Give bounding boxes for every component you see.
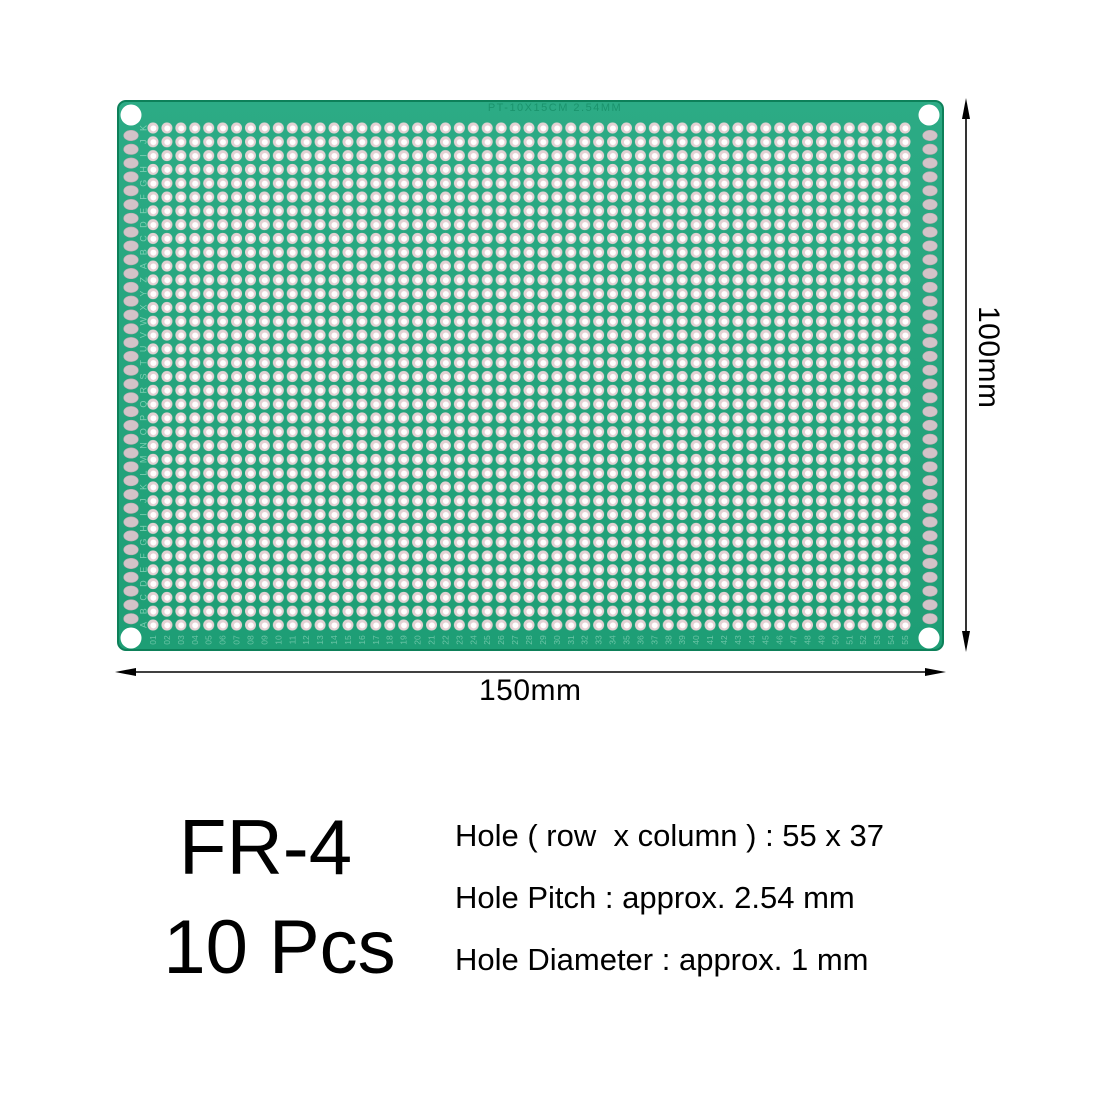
- svg-text:51: 51: [844, 635, 854, 645]
- svg-text:Q: Q: [139, 401, 149, 408]
- product-image: KJIHGFEDCBAZYXWVUTSRQPONMLKJIHGFEDCBA010…: [0, 0, 1100, 1100]
- svg-text:I: I: [139, 513, 149, 516]
- svg-text:25: 25: [482, 635, 492, 645]
- edge-pad: [923, 130, 938, 140]
- edge-pad: [124, 600, 139, 610]
- svg-text:03: 03: [176, 635, 186, 645]
- svg-text:45: 45: [761, 635, 771, 645]
- svg-text:C: C: [139, 235, 149, 242]
- edge-pad: [124, 282, 139, 292]
- edge-pad: [923, 448, 938, 458]
- svg-text:S: S: [139, 373, 149, 379]
- svg-text:34: 34: [608, 635, 618, 645]
- material-label: FR-4: [168, 803, 363, 893]
- edge-pad: [124, 475, 139, 485]
- edge-pad: [124, 489, 139, 499]
- edge-pad: [923, 158, 938, 168]
- svg-text:I: I: [139, 154, 149, 157]
- svg-text:07: 07: [232, 635, 242, 645]
- svg-text:V: V: [139, 332, 149, 338]
- edge-pad: [923, 351, 938, 361]
- edge-pad: [124, 255, 139, 265]
- height-dimension-label: 100mm: [971, 306, 1005, 409]
- mounting-hole: [121, 628, 142, 649]
- edge-pad: [923, 268, 938, 278]
- svg-text:23: 23: [454, 635, 464, 645]
- svg-text:39: 39: [677, 635, 687, 645]
- svg-text:27: 27: [510, 635, 520, 645]
- spec-hole-count: Hole ( row x column ) : 55 x 37: [455, 818, 884, 854]
- svg-text:14: 14: [329, 635, 339, 645]
- svg-text:16: 16: [357, 635, 367, 645]
- edge-pad: [124, 434, 139, 444]
- svg-text:N: N: [139, 442, 149, 449]
- edge-pad: [923, 531, 938, 541]
- svg-text:28: 28: [524, 635, 534, 645]
- edge-pad: [923, 558, 938, 568]
- edge-pad: [923, 255, 938, 265]
- svg-text:38: 38: [663, 635, 673, 645]
- edge-pad: [923, 600, 938, 610]
- edge-pad: [124, 324, 139, 334]
- edge-pad: [923, 406, 938, 416]
- svg-text:Y: Y: [139, 291, 149, 297]
- edge-pad: [124, 199, 139, 209]
- svg-text:21: 21: [427, 635, 437, 645]
- edge-pad: [923, 434, 938, 444]
- edge-pad: [124, 296, 139, 306]
- spec-hole-diameter: Hole Diameter : approx. 1 mm: [455, 942, 884, 978]
- edge-pad: [124, 379, 139, 389]
- edge-pad: [124, 517, 139, 527]
- svg-text:A: A: [139, 622, 149, 628]
- svg-text:17: 17: [371, 635, 381, 645]
- edge-pad: [124, 503, 139, 513]
- svg-text:36: 36: [635, 635, 645, 645]
- svg-text:47: 47: [789, 635, 799, 645]
- svg-text:10: 10: [273, 635, 283, 645]
- svg-text:09: 09: [259, 635, 269, 645]
- svg-text:33: 33: [594, 635, 604, 645]
- svg-text:D: D: [139, 580, 149, 587]
- edge-pad: [124, 186, 139, 196]
- edge-pad: [923, 586, 938, 596]
- edge-pad: [124, 268, 139, 278]
- edge-pad: [124, 365, 139, 375]
- height-dimension-line: [962, 98, 970, 652]
- svg-text:55: 55: [900, 635, 910, 645]
- svg-text:46: 46: [775, 635, 785, 645]
- svg-text:20: 20: [413, 635, 423, 645]
- edge-pad: [124, 241, 139, 251]
- silkscreen-title: PT-10X15CM 2.54MM: [488, 102, 622, 114]
- edge-pad: [124, 613, 139, 623]
- edge-pad: [923, 282, 938, 292]
- width-dimension-label: 150mm: [479, 674, 582, 708]
- edge-pad: [923, 572, 938, 582]
- edge-pad: [923, 241, 938, 251]
- svg-text:E: E: [139, 567, 149, 573]
- svg-text:C: C: [139, 594, 149, 601]
- edge-pad: [923, 365, 938, 375]
- svg-text:02: 02: [162, 635, 172, 645]
- svg-text:31: 31: [566, 635, 576, 645]
- svg-text:G: G: [139, 180, 149, 187]
- svg-text:37: 37: [649, 635, 659, 645]
- edge-pad: [923, 420, 938, 430]
- svg-text:R: R: [139, 387, 149, 394]
- hole-grid: [146, 121, 912, 632]
- pcb-board: KJIHGFEDCBAZYXWVUTSRQPONMLKJIHGFEDCBA010…: [0, 0, 1100, 760]
- edge-pad: [923, 296, 938, 306]
- svg-text:41: 41: [705, 635, 715, 645]
- svg-text:01: 01: [148, 635, 158, 645]
- svg-text:J: J: [139, 140, 149, 145]
- edge-pad: [923, 199, 938, 209]
- edge-pad: [124, 310, 139, 320]
- svg-text:44: 44: [747, 635, 757, 645]
- svg-text:L: L: [139, 471, 149, 476]
- svg-text:19: 19: [399, 635, 409, 645]
- svg-text:B: B: [139, 249, 149, 255]
- edge-pad: [923, 613, 938, 623]
- edge-pad: [124, 531, 139, 541]
- edge-pad: [124, 406, 139, 416]
- svg-text:Z: Z: [139, 277, 149, 283]
- edge-pad: [923, 489, 938, 499]
- edge-pad: [923, 213, 938, 223]
- edge-pad: [124, 544, 139, 554]
- svg-text:42: 42: [719, 635, 729, 645]
- svg-text:H: H: [139, 525, 149, 532]
- svg-text:D: D: [139, 221, 149, 228]
- svg-text:49: 49: [816, 635, 826, 645]
- svg-text:22: 22: [440, 635, 450, 645]
- svg-text:35: 35: [621, 635, 631, 645]
- edge-pad: [923, 544, 938, 554]
- svg-text:15: 15: [343, 635, 353, 645]
- mounting-hole: [919, 628, 940, 649]
- edge-pad: [124, 351, 139, 361]
- svg-text:J: J: [139, 499, 149, 504]
- edge-pad: [923, 393, 938, 403]
- edge-pad: [124, 586, 139, 596]
- edge-pad: [124, 337, 139, 347]
- svg-text:54: 54: [886, 635, 896, 645]
- edge-pad: [124, 172, 139, 182]
- svg-text:50: 50: [830, 635, 840, 645]
- svg-text:29: 29: [538, 635, 548, 645]
- spec-hole-pitch: Hole Pitch : approx. 2.54 mm: [455, 880, 884, 916]
- edge-pad: [124, 144, 139, 154]
- svg-text:B: B: [139, 608, 149, 614]
- svg-text:53: 53: [872, 635, 882, 645]
- edge-pad: [923, 379, 938, 389]
- svg-text:A: A: [139, 263, 149, 269]
- svg-text:06: 06: [218, 635, 228, 645]
- edge-pad: [124, 420, 139, 430]
- svg-text:E: E: [139, 208, 149, 214]
- svg-text:30: 30: [552, 635, 562, 645]
- svg-text:26: 26: [496, 635, 506, 645]
- svg-text:K: K: [139, 484, 149, 490]
- edge-pad: [923, 517, 938, 527]
- edge-pad: [124, 448, 139, 458]
- svg-text:24: 24: [468, 635, 478, 645]
- edge-pad: [923, 475, 938, 485]
- quantity-label: 10 Pcs: [152, 904, 407, 991]
- edge-pad: [923, 172, 938, 182]
- svg-text:43: 43: [733, 635, 743, 645]
- svg-text:52: 52: [858, 635, 868, 645]
- svg-text:48: 48: [803, 635, 813, 645]
- svg-text:F: F: [139, 553, 149, 559]
- edge-pad: [923, 462, 938, 472]
- svg-text:08: 08: [245, 635, 255, 645]
- edge-pad: [124, 213, 139, 223]
- edge-pad: [124, 158, 139, 168]
- svg-text:11: 11: [287, 635, 297, 644]
- svg-text:F: F: [139, 194, 149, 200]
- edge-pad: [923, 186, 938, 196]
- svg-text:18: 18: [385, 635, 395, 645]
- svg-text:40: 40: [691, 635, 701, 645]
- edge-pad: [923, 227, 938, 237]
- mounting-hole: [919, 105, 940, 126]
- edge-pad: [923, 337, 938, 347]
- svg-text:P: P: [139, 415, 149, 421]
- svg-text:04: 04: [190, 635, 200, 645]
- svg-text:T: T: [139, 359, 149, 365]
- edge-pad: [923, 503, 938, 513]
- svg-text:M: M: [139, 456, 149, 464]
- edge-pad: [923, 324, 938, 334]
- edge-pad: [124, 572, 139, 582]
- edge-pad: [124, 558, 139, 568]
- svg-text:32: 32: [580, 635, 590, 645]
- edge-pad: [923, 310, 938, 320]
- svg-text:H: H: [139, 166, 149, 173]
- spec-list: Hole ( row x column ) : 55 x 37 Hole Pit…: [455, 818, 884, 978]
- mounting-hole: [121, 105, 142, 126]
- edge-pad: [923, 144, 938, 154]
- svg-text:12: 12: [301, 635, 311, 645]
- edge-pad: [124, 462, 139, 472]
- svg-text:W: W: [139, 317, 149, 326]
- svg-text:K: K: [139, 125, 149, 131]
- edge-pad: [124, 130, 139, 140]
- svg-text:U: U: [139, 346, 149, 353]
- svg-text:05: 05: [204, 635, 214, 645]
- svg-text:O: O: [139, 428, 149, 435]
- svg-text:X: X: [139, 304, 149, 310]
- edge-pad: [124, 393, 139, 403]
- svg-text:G: G: [139, 539, 149, 546]
- svg-text:13: 13: [315, 635, 325, 645]
- edge-pad: [124, 227, 139, 237]
